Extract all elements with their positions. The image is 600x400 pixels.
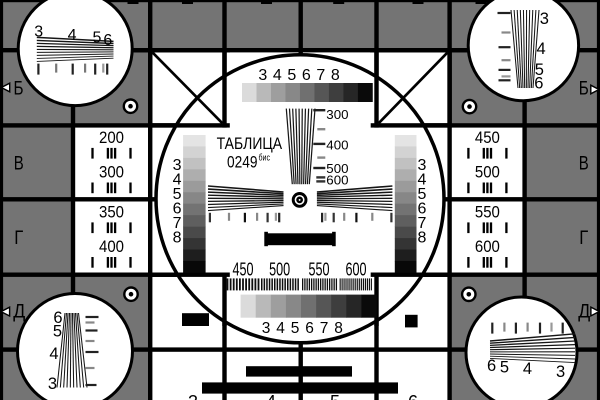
svg-text:3: 3 <box>540 10 549 28</box>
svg-text:400: 400 <box>326 137 348 152</box>
svg-text:6: 6 <box>302 67 311 84</box>
svg-text:4: 4 <box>276 320 285 337</box>
svg-text:Г: Г <box>14 227 23 249</box>
svg-text:3: 3 <box>258 67 267 84</box>
svg-text:550: 550 <box>309 260 330 280</box>
svg-text:5: 5 <box>287 67 296 84</box>
svg-text:4: 4 <box>68 27 77 44</box>
svg-text:600: 600 <box>475 237 500 256</box>
svg-text:400: 400 <box>99 237 124 256</box>
svg-text:бис: бис <box>259 153 271 164</box>
svg-text:Д: Д <box>13 301 25 323</box>
svg-text:8: 8 <box>173 229 182 246</box>
svg-text:В: В <box>14 153 24 175</box>
svg-text:8: 8 <box>334 320 343 337</box>
svg-text:В: В <box>579 153 589 175</box>
svg-text:550: 550 <box>475 202 500 221</box>
svg-text:ТАБЛИЦА: ТАБЛИЦА <box>217 135 283 153</box>
svg-text:500: 500 <box>269 260 290 280</box>
svg-text:500: 500 <box>475 163 500 182</box>
svg-text:3: 3 <box>188 392 198 400</box>
svg-text:6: 6 <box>534 75 543 93</box>
svg-text:3: 3 <box>262 320 271 337</box>
svg-text:300: 300 <box>99 163 124 182</box>
svg-text:3: 3 <box>48 375 57 393</box>
svg-text:5: 5 <box>93 30 102 47</box>
svg-text:0249: 0249 <box>227 153 258 172</box>
svg-text:450: 450 <box>233 260 254 280</box>
svg-text:350: 350 <box>99 202 124 221</box>
svg-text:300: 300 <box>326 107 348 122</box>
svg-text:4: 4 <box>537 40 546 58</box>
svg-text:7: 7 <box>320 320 329 337</box>
svg-text:Д: Д <box>578 301 590 323</box>
svg-text:6: 6 <box>305 320 314 337</box>
svg-text:3: 3 <box>34 23 43 40</box>
svg-text:6: 6 <box>487 357 496 375</box>
svg-text:600: 600 <box>326 172 348 187</box>
svg-text:5: 5 <box>500 359 509 377</box>
svg-text:4: 4 <box>523 360 532 378</box>
svg-text:6: 6 <box>103 32 112 49</box>
svg-text:Г: Г <box>579 227 588 249</box>
svg-text:4: 4 <box>273 67 282 84</box>
svg-text:8: 8 <box>418 229 427 246</box>
svg-text:Б: Б <box>579 78 589 100</box>
svg-text:Б: Б <box>14 78 24 100</box>
svg-text:4: 4 <box>49 345 58 363</box>
svg-text:600: 600 <box>346 260 367 280</box>
svg-text:5: 5 <box>291 320 300 337</box>
svg-text:7: 7 <box>316 67 325 84</box>
svg-text:450: 450 <box>475 128 500 147</box>
svg-text:3: 3 <box>556 363 565 381</box>
svg-text:5: 5 <box>53 322 62 340</box>
svg-text:5: 5 <box>330 392 340 400</box>
svg-text:8: 8 <box>331 67 340 84</box>
svg-text:6: 6 <box>408 392 418 400</box>
svg-text:200: 200 <box>99 128 124 147</box>
svg-text:4: 4 <box>266 392 276 400</box>
